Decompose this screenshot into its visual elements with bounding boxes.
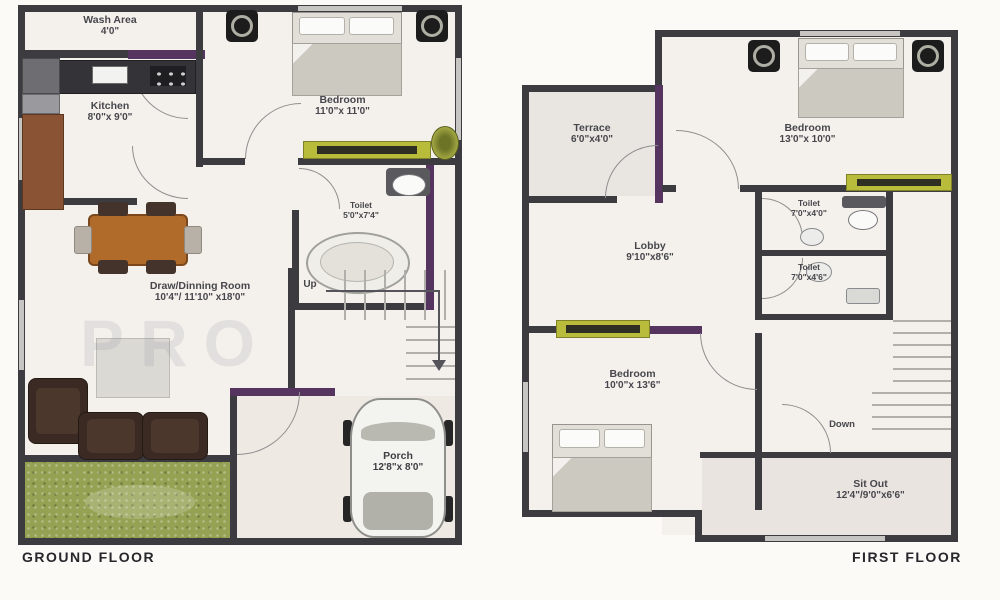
wc <box>800 228 824 246</box>
pillow <box>853 43 897 61</box>
wall-segment <box>522 196 617 203</box>
room-label-bedroom-second: Bedroom 10'0"x 13'6" <box>540 368 725 392</box>
ceiling-fan-icon <box>748 40 780 72</box>
stair-tread <box>893 344 951 346</box>
wall-segment <box>886 192 893 320</box>
blanket <box>798 68 904 118</box>
room-label-sit-out: Sit Out 12'4"/9'0"x6'6" <box>788 478 953 502</box>
room-label-bedroom-master: Bedroom 13'0"x 10'0" <box>700 122 915 146</box>
first-floor-title: FIRST FLOOR <box>852 549 962 565</box>
room-label-toilet-bottom: Toilet 7'0"x4'6" <box>766 262 852 282</box>
wall-segment <box>522 85 529 517</box>
pillow <box>604 429 645 448</box>
wall-segment <box>755 314 893 320</box>
window <box>523 382 528 452</box>
accent-wall <box>645 326 702 334</box>
wall-segment <box>522 85 662 92</box>
wash-basin <box>848 210 878 230</box>
stair-tread <box>893 356 951 358</box>
stair-tread <box>872 428 951 430</box>
stair-tread <box>872 416 951 418</box>
bed <box>552 424 652 512</box>
stair-tread <box>872 392 951 394</box>
blanket <box>552 457 652 512</box>
room-label-lobby: Lobby 9'10"x8'6" <box>585 240 715 264</box>
window <box>765 536 885 541</box>
wall-segment <box>755 192 762 320</box>
stair-tread <box>893 368 951 370</box>
wall-segment <box>655 30 662 92</box>
pillow <box>805 43 849 61</box>
bed <box>798 38 904 118</box>
window-console <box>846 174 952 191</box>
stair-tread <box>893 332 951 334</box>
floor-plan-canvas: Up Wash Area 4'0" Kitchen 8'0"x 9'0" Bed… <box>0 0 1000 600</box>
room-label-toilet-top: Toilet 7'0"x4'0" <box>766 198 852 218</box>
window <box>800 31 900 36</box>
wall-segment <box>662 185 676 192</box>
first-floor-plan: Down Terrace 6'0"x4'0" Bedroom 13'0"x 10… <box>0 0 1000 600</box>
pillow <box>559 429 600 448</box>
window-console <box>556 320 650 338</box>
stair-tread <box>893 380 951 382</box>
wall-segment <box>762 250 888 256</box>
wall-segment <box>529 326 558 333</box>
stair-tread <box>872 404 951 406</box>
room-label-terrace: Terrace 6'0"x4'0" <box>524 122 660 146</box>
wall-segment <box>951 30 958 542</box>
wash-basin <box>846 288 880 304</box>
stairs-down-label: Down <box>818 419 866 430</box>
ceiling-fan-icon <box>912 40 944 72</box>
stair-tread <box>893 320 951 322</box>
